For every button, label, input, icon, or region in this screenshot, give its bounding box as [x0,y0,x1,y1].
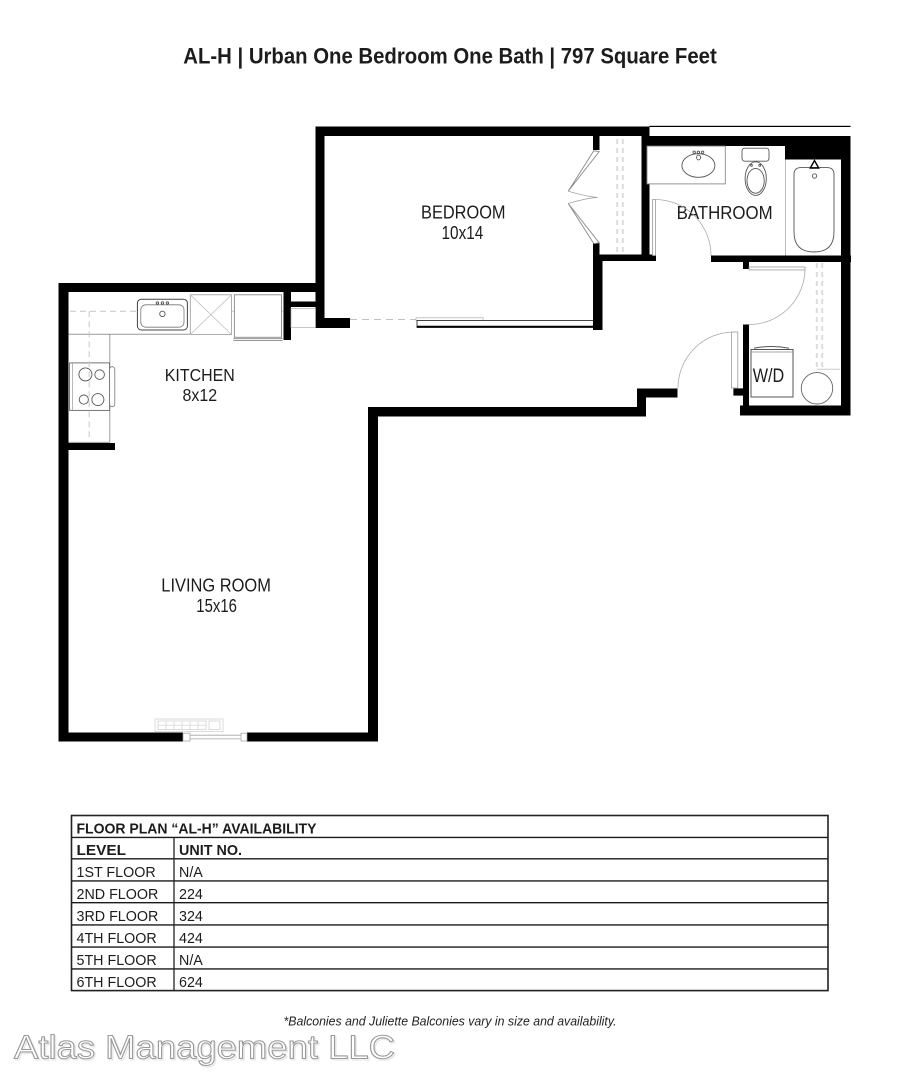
svg-text:LIVING ROOM: LIVING ROOM [161,575,271,595]
svg-text:5TH FLOOR: 5TH FLOOR [77,953,157,969]
svg-text:4TH FLOOR: 4TH FLOOR [77,931,157,947]
svg-text:LEVEL: LEVEL [77,843,127,859]
svg-text:N/A: N/A [179,865,203,881]
svg-text:W/D: W/D [753,366,785,387]
svg-text:424: 424 [179,931,203,947]
svg-text:*Balconies and Juliette Balcon: *Balconies and Juliette Balconies vary i… [284,1013,617,1028]
svg-text:UNIT NO.: UNIT NO. [179,843,242,859]
svg-text:624: 624 [179,975,203,991]
svg-text:AL-H | Urban One Bedroom One B: AL-H | Urban One Bedroom One Bath | 797 … [183,44,717,69]
svg-text:Atlas Management LLC: Atlas Management LLC [14,1030,395,1067]
svg-text:N/A: N/A [179,953,203,969]
svg-text:1ST FLOOR: 1ST FLOOR [77,865,156,881]
svg-text:KITCHEN: KITCHEN [165,365,235,385]
svg-text:324: 324 [179,909,203,925]
svg-text:10x14: 10x14 [442,223,484,243]
svg-text:FLOOR PLAN “AL-H” AVAILABILITY: FLOOR PLAN “AL-H” AVAILABILITY [77,822,317,838]
svg-text:15x16: 15x16 [196,596,237,616]
svg-text:BEDROOM: BEDROOM [421,202,506,222]
svg-text:224: 224 [179,887,203,903]
svg-text:3RD FLOOR: 3RD FLOOR [77,909,159,925]
svg-text:8x12: 8x12 [182,385,217,405]
svg-text:2ND FLOOR: 2ND FLOOR [77,887,159,903]
svg-text:6TH FLOOR: 6TH FLOOR [77,975,157,991]
